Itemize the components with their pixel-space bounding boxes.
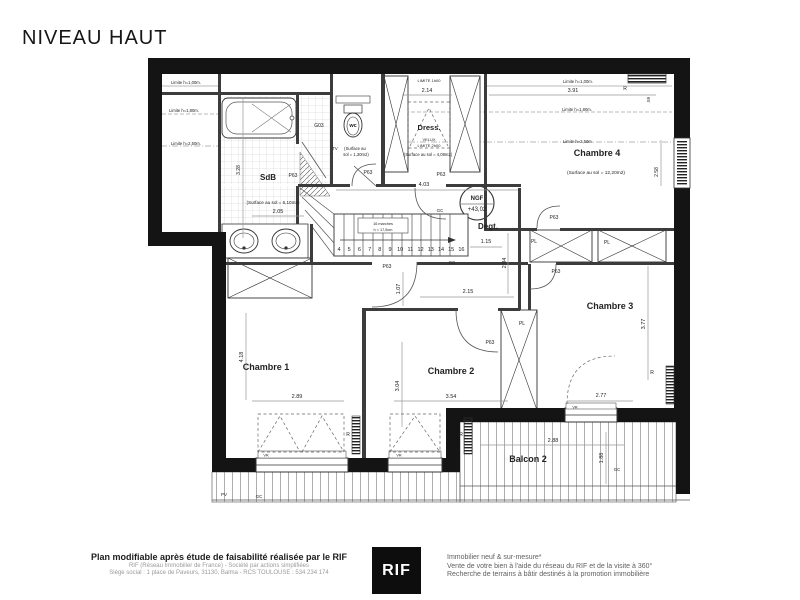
plan-label: Chambre 2 bbox=[428, 366, 475, 376]
stair-step-number: 10 bbox=[397, 247, 403, 253]
plan-label: +43,02 bbox=[468, 207, 487, 213]
bathtub bbox=[222, 98, 296, 138]
plan-label: G03 bbox=[314, 123, 324, 129]
stair-step-number: 7 bbox=[368, 247, 371, 253]
plan-label: NGF bbox=[471, 196, 484, 202]
plan-label: GC bbox=[614, 467, 622, 472]
rif-logo-text: RIF bbox=[382, 562, 411, 580]
plan-label: Limite h=2,50m. bbox=[563, 139, 593, 144]
plan-label: GC bbox=[449, 260, 457, 265]
plan-label: h = 17,5cm bbox=[374, 228, 393, 232]
plan-label: P63 bbox=[552, 269, 561, 275]
plan-label: LIMITE 1h00 bbox=[418, 78, 442, 83]
rif-logo: RIF bbox=[372, 547, 421, 594]
radiator-chambre3 bbox=[666, 366, 674, 404]
plan-label: R bbox=[650, 370, 654, 376]
stair-step-number: 4 bbox=[337, 247, 340, 253]
plan-label: (Surface au sol = 6,10m2) bbox=[247, 200, 300, 205]
plan-label: R bbox=[623, 86, 627, 92]
plan-label: GC bbox=[256, 494, 264, 499]
plan-label: PV bbox=[221, 492, 227, 497]
plan-label: Limite h=1,80m. bbox=[562, 107, 592, 112]
stair-step-number: 11 bbox=[408, 247, 414, 253]
plan-label: P63 bbox=[364, 170, 373, 176]
radiator-balcony bbox=[464, 418, 472, 454]
stair-step-number: 14 bbox=[438, 247, 444, 253]
plan-label: 3.28 bbox=[236, 165, 242, 175]
plan-label: R bbox=[346, 432, 350, 438]
plan-label: wc bbox=[348, 123, 356, 129]
plan-label: 16 marches bbox=[373, 222, 393, 226]
plan-label: Chambre 4 bbox=[574, 148, 621, 158]
plan-label: .59 bbox=[646, 96, 651, 103]
door-chambre3 bbox=[530, 264, 556, 289]
plan-label: 2.15 bbox=[463, 289, 474, 295]
plan-label: 3.91 bbox=[568, 88, 579, 94]
footer-service-line3: Recherche de terrains à bâtir destinés à… bbox=[447, 571, 652, 580]
plan-label: Chambre 1 bbox=[243, 362, 290, 372]
plan-label: GC bbox=[437, 208, 445, 213]
footer-company-line1: RIF (Réseau Immobilier de France) - Soci… bbox=[88, 563, 350, 569]
stair-step-number: 15 bbox=[448, 247, 454, 253]
radiator-top-wall bbox=[628, 74, 666, 83]
plan-label: 3.77 bbox=[641, 319, 647, 330]
stair-step-number: 12 bbox=[418, 247, 424, 253]
plan-label: VR bbox=[263, 454, 269, 458]
plan-label: 4.18 bbox=[239, 352, 245, 363]
stair-step-number: 6 bbox=[358, 247, 361, 253]
stair-step-number: 8 bbox=[378, 247, 381, 253]
plan-label: 2.88 bbox=[548, 438, 559, 444]
plan-label: 3.54 bbox=[446, 394, 457, 400]
plan-label: Balcon 2 bbox=[509, 454, 547, 464]
plan-label: 2.89 bbox=[292, 394, 303, 400]
plan-label: TV bbox=[332, 146, 338, 151]
plan-label: 2.58 bbox=[654, 167, 660, 177]
radiator-bottom bbox=[352, 416, 360, 454]
stair-step-number: 9 bbox=[388, 247, 391, 253]
plan-label: VR bbox=[572, 406, 578, 410]
plan-label: 2.77 bbox=[596, 393, 607, 399]
balcony-floor bbox=[460, 422, 676, 502]
plan-label: P63 bbox=[486, 340, 495, 346]
plan-label: 1.88 bbox=[599, 453, 605, 464]
plan-label: Limite h=1,80m. bbox=[169, 108, 199, 113]
stair-step-number: 5 bbox=[348, 247, 351, 253]
plan-label: P63 bbox=[550, 215, 559, 221]
plan-label: VELUX bbox=[422, 137, 435, 142]
plan-label: Chambre 3 bbox=[587, 301, 634, 311]
plan-label: R bbox=[459, 432, 463, 438]
plan-label: PL bbox=[519, 321, 525, 327]
plan-label: Limite h=2,50m. bbox=[171, 141, 201, 146]
footer: Plan modifiable après étude de faisabili… bbox=[0, 543, 800, 600]
footer-service-line2: Vente de votre bien à l'aide du réseau d… bbox=[447, 563, 652, 572]
stair-step-number: 13 bbox=[428, 247, 434, 253]
plan-label: SdB bbox=[260, 173, 276, 182]
plan-label: (Surface au sol = 12,20m2) bbox=[567, 170, 625, 176]
plan-label: Limite h=1,00m. bbox=[171, 80, 201, 85]
plan-label: 1.07 bbox=[396, 284, 402, 295]
window-chambre4-right bbox=[674, 138, 690, 188]
plan-label: sol = 1,30m2) bbox=[343, 152, 369, 157]
toilet bbox=[336, 96, 370, 137]
double-sink bbox=[222, 224, 308, 258]
plan-label: Degt. bbox=[478, 222, 498, 231]
plan-label: VR bbox=[396, 454, 402, 458]
door-chambre1 bbox=[372, 262, 417, 307]
footer-company-line2: Siège social : 1 place de Paveurs, 31130… bbox=[88, 570, 350, 576]
plan-label: P63 bbox=[289, 173, 298, 179]
plan-label: 2.94 bbox=[502, 258, 508, 269]
plan-label: Dress. bbox=[418, 123, 441, 132]
plan-label: 1.15 bbox=[481, 239, 492, 245]
plan-label: LIMITE 2h00 bbox=[418, 143, 442, 148]
footer-right-block: Immobilier neuf & sur-mesure* Vente de v… bbox=[447, 554, 652, 580]
plan-label: P63 bbox=[383, 264, 392, 270]
plan-label: (Surface au sol = 4,08m2) bbox=[404, 152, 453, 157]
footer-service-line1: Immobilier neuf & sur-mesure* bbox=[447, 554, 652, 563]
window-chambre1 bbox=[256, 451, 348, 472]
plan-label: P63 bbox=[437, 172, 446, 178]
plan-label: 2.14 bbox=[422, 88, 433, 94]
plan-label: PL bbox=[531, 239, 537, 245]
floor-plan: SdBDress.Degt.Chambre 1Chambre 2Chambre … bbox=[0, 0, 800, 600]
plan-label: 4.03 bbox=[419, 182, 430, 188]
terrace-roof-strip bbox=[212, 472, 460, 502]
footer-disclaimer: Plan modifiable après étude de faisabili… bbox=[88, 552, 350, 562]
plan-label: PL bbox=[604, 240, 610, 246]
footer-left-block: Plan modifiable après étude de faisabili… bbox=[88, 552, 350, 576]
plan-label: 3.04 bbox=[395, 381, 401, 392]
plan-label: (Surface au bbox=[344, 146, 366, 151]
stair-step-number: 16 bbox=[458, 247, 464, 253]
plan-label: Limite h=1,00m. bbox=[563, 79, 593, 84]
plan-label: 2.05 bbox=[273, 209, 284, 215]
